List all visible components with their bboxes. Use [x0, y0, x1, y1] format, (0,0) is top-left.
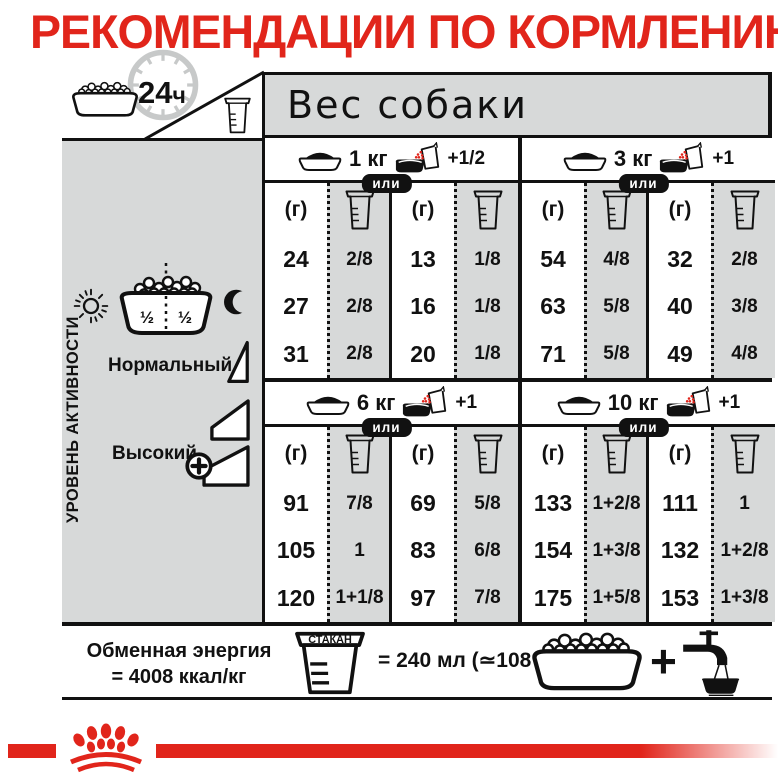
dry-grams-value: 24: [265, 236, 327, 283]
wet-extra-label: +1: [719, 392, 741, 414]
dry-only-column: (г) 133 154 175 1+2/8 1+3/8 1+5/8: [522, 427, 649, 622]
measuring-cup-icon: [728, 189, 762, 231]
dry-cups-value: 2/8: [330, 331, 389, 378]
or-badge: или: [618, 174, 668, 193]
weight-group-header: 10 кг +1 или: [522, 382, 775, 427]
grams-unit-header: (г): [265, 183, 327, 236]
mix-grams-value: 13: [392, 236, 454, 283]
kibble-bowl-icon: [528, 630, 646, 692]
wet-extra-label: +1/2: [448, 148, 486, 170]
dry-cups-value: 1+5/8: [587, 575, 646, 622]
dry-grams-value: 31: [265, 331, 327, 378]
measuring-cup-icon: [471, 189, 505, 231]
dry-cups-value: 1+2/8: [587, 480, 646, 527]
dry-only-column: (г) 54 63 71 4/8 5/8 5/8: [522, 183, 649, 378]
dry-cups-value: 2/8: [330, 236, 389, 283]
wet-pouch-bowl-icon: [659, 142, 705, 178]
or-badge: или: [618, 418, 668, 437]
weight-group-header: 1 кг +1/2 или: [265, 138, 518, 183]
measuring-cup-icon: [471, 433, 505, 475]
energy-line1: Обменная энергия: [74, 638, 284, 664]
dry-grams-value: 91: [265, 480, 327, 527]
daily-ration-label: 24ч: [138, 75, 186, 111]
half-split-bowl-icon: ½ ½: [116, 263, 216, 351]
food-bowl-icon: [298, 146, 342, 172]
food-bowl-icon: [563, 146, 607, 172]
or-badge: или: [361, 418, 411, 437]
weight-label: 1 кг: [349, 146, 388, 172]
wet-pouch-bowl-icon: [666, 386, 712, 422]
dry-grams-value: 154: [522, 527, 584, 574]
weight-group-1kg: 1 кг +1/2 или (г) 24 27 31 2/8 2/8: [265, 138, 518, 378]
weight-group-6kg: 6 кг +1 или (г) 91 105 120 7/8 1: [265, 382, 518, 622]
weight-group-3kg: 3 кг +1 или (г) 54 63 71 4/8 5/8: [522, 138, 775, 378]
mix-cups-value: 7/8: [457, 575, 518, 622]
mix-cups-value: 2/8: [714, 236, 775, 283]
measuring-cup-icon: [343, 433, 377, 475]
measuring-cup-icon: [600, 433, 634, 475]
activity-sidebar: УРОВЕНЬ АКТИВНОСТИ ½ ½ Нормальный Высоки…: [62, 138, 262, 622]
mix-cups-value: 1+3/8: [714, 575, 775, 622]
wet-pouch-bowl-icon: [395, 142, 441, 178]
mix-grams-value: 16: [392, 283, 454, 330]
mix-cups-value: 1/8: [457, 331, 518, 378]
grams-unit-header: (г): [265, 427, 327, 480]
dry-plus-wet-column: (г) 32 40 49 2/8 3/8 4/8: [649, 183, 775, 378]
mix-cups-value: 1/8: [457, 283, 518, 330]
mix-grams-value: 40: [649, 283, 711, 330]
dry-cups-value: 1+3/8: [587, 527, 646, 574]
weight-group-10kg: 10 кг +1 или (г) 133 154 175 1+2/8: [522, 382, 775, 622]
wet-pouch-bowl-icon: [402, 386, 448, 422]
food-bowl-icon: [557, 390, 601, 416]
plus-circle-icon: [184, 451, 214, 481]
moon-icon: [224, 285, 250, 319]
energy-note: Обменная энергия = 4008 ккал/кг: [74, 638, 284, 690]
wet-extra-label: +1: [712, 148, 734, 170]
crown-logo-icon: [58, 722, 154, 776]
dry-cups-value: 5/8: [587, 331, 646, 378]
measuring-cup-icon: [600, 189, 634, 231]
dry-plus-wet-column: (г) 111 132 153 1 1+2/8 1+3/8: [649, 427, 775, 622]
mix-grams-value: 32: [649, 236, 711, 283]
mix-cups-value: 6/8: [457, 527, 518, 574]
cup-equivalence: = 240 мл (≃108 г): [378, 648, 553, 673]
water-tap-icon: [676, 628, 758, 696]
mix-grams-value: 49: [649, 331, 711, 378]
weight-label: 10 кг: [608, 390, 659, 416]
dose-grid: 1 кг +1/2 или (г) 24 27 31 2/8 2/8: [262, 138, 772, 622]
weight-group-header: 3 кг +1 или: [522, 138, 775, 183]
or-badge: или: [361, 174, 411, 193]
dry-cups-value: 4/8: [587, 236, 646, 283]
grams-unit-header: (г): [522, 427, 584, 480]
dry-grams-value: 120: [265, 575, 327, 622]
dry-grams-value: 54: [522, 236, 584, 283]
footer-bar: [8, 744, 56, 758]
dry-plus-wet-column: (г) 69 83 97 5/8 6/8 7/8: [392, 427, 518, 622]
dry-grams-value: 63: [522, 283, 584, 330]
dry-cups-value: 5/8: [587, 283, 646, 330]
dry-grams-value: 105: [265, 527, 327, 574]
cup-label: СТАКАН: [308, 634, 352, 646]
daily-unit: ч: [172, 82, 185, 108]
weight-title: Вес собаки: [287, 83, 528, 127]
info-bar: Обменная энергия = 4008 ккал/кг СТАКАН =…: [62, 622, 772, 700]
mix-grams-value: 132: [649, 527, 711, 574]
sun-icon: [70, 285, 112, 327]
mix-grams-value: 153: [649, 575, 711, 622]
measuring-cup-icon: [728, 433, 762, 475]
mix-grams-value: 111: [649, 480, 711, 527]
energy-line2: = 4008 ккал/кг: [74, 664, 284, 690]
mix-grams-value: 97: [392, 575, 454, 622]
mix-grams-value: 69: [392, 480, 454, 527]
plus-sign: +: [650, 634, 677, 688]
activity-step-icon: [226, 339, 250, 385]
mix-cups-value: 5/8: [457, 480, 518, 527]
grams-unit-header: (г): [522, 183, 584, 236]
weight-label: 3 кг: [614, 146, 653, 172]
dry-cups-value: 7/8: [330, 480, 389, 527]
half-right-label: ½: [178, 308, 192, 327]
dry-only-column: (г) 24 27 31 2/8 2/8 2/8: [265, 183, 392, 378]
mix-grams-value: 20: [392, 331, 454, 378]
wet-extra-label: +1: [455, 392, 477, 414]
activity-axis-label: УРОВЕНЬ АКТИВНОСТИ: [64, 333, 90, 523]
dry-plus-wet-column: (г) 13 16 20 1/8 1/8 1/8: [392, 183, 518, 378]
weight-label: 6 кг: [357, 390, 396, 416]
kibble-bowl-icon: [70, 80, 140, 118]
weight-group-header: 6 кг +1 или: [265, 382, 518, 427]
dry-grams-value: 175: [522, 575, 584, 622]
measuring-cup-icon: [343, 189, 377, 231]
mix-cups-value: 4/8: [714, 331, 775, 378]
dry-only-column: (г) 91 105 120 7/8 1 1+1/8: [265, 427, 392, 622]
dry-grams-value: 71: [522, 331, 584, 378]
activity-normal-label: Нормальный: [108, 355, 232, 377]
activity-step-icon: [210, 399, 250, 441]
feeding-table: 24ч Вес собаки УРОВЕНЬ АКТИВНОСТИ ½ ½ Но…: [62, 60, 772, 622]
dry-grams-value: 133: [522, 480, 584, 527]
measuring-cup-icon: СТАКАН: [290, 630, 370, 696]
mix-grams-value: 83: [392, 527, 454, 574]
mix-cups-value: 1: [714, 480, 775, 527]
mix-cups-value: 1+2/8: [714, 527, 775, 574]
dry-cups-value: 1: [330, 527, 389, 574]
mix-cups-value: 3/8: [714, 283, 775, 330]
dry-cups-value: 1+1/8: [330, 575, 389, 622]
mix-cups-value: 1/8: [457, 236, 518, 283]
footer-bar: [156, 744, 778, 758]
half-left-label: ½: [140, 308, 154, 327]
dry-grams-value: 27: [265, 283, 327, 330]
dry-cups-value: 2/8: [330, 283, 389, 330]
food-bowl-icon: [306, 390, 350, 416]
daily-value: 24: [138, 75, 172, 110]
weight-header-band: Вес собаки: [262, 72, 772, 138]
